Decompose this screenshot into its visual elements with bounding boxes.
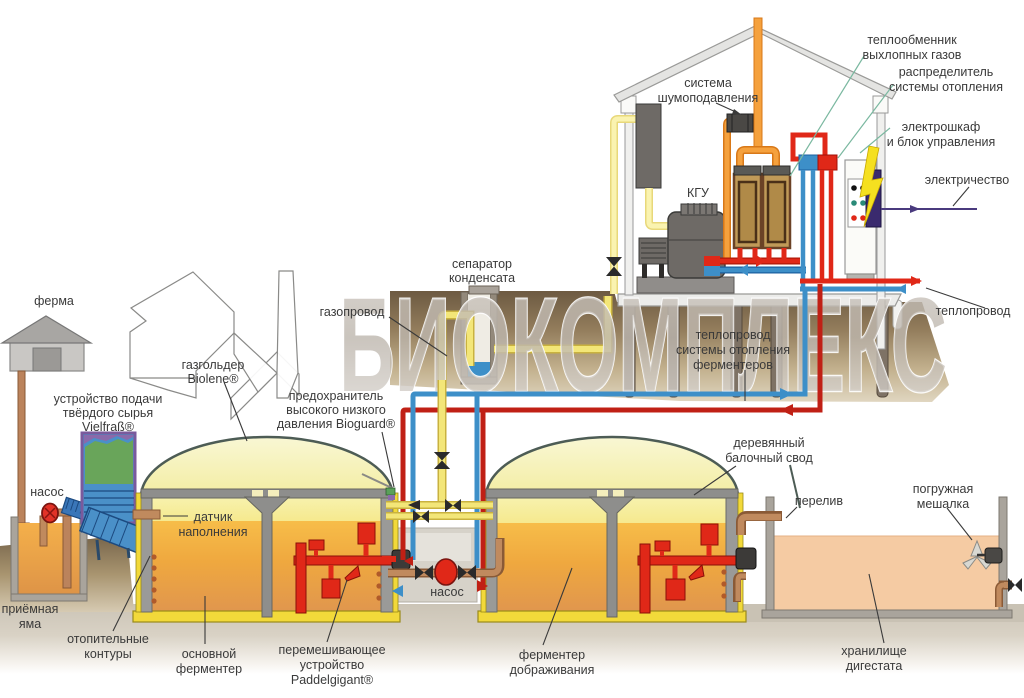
svg-text:и блок управления: и блок управления bbox=[887, 135, 996, 149]
svg-text:ферма: ферма bbox=[34, 294, 74, 308]
svg-text:дображивания: дображивания bbox=[510, 663, 595, 677]
svg-text:распределитель: распределитель bbox=[899, 65, 994, 79]
svg-text:газопровод: газопровод bbox=[320, 305, 385, 319]
svg-text:Paddelgigant®: Paddelgigant® bbox=[291, 673, 374, 687]
svg-text:деревянный: деревянный bbox=[733, 436, 804, 450]
svg-text:приёмная: приёмная bbox=[2, 602, 59, 616]
svg-text:основной: основной bbox=[182, 647, 237, 661]
svg-text:давления Bioguard®: давления Bioguard® bbox=[277, 417, 396, 431]
svg-text:Biolene®: Biolene® bbox=[188, 372, 240, 386]
svg-text:твёрдого сырья: твёрдого сырья bbox=[63, 406, 153, 420]
svg-text:отопительные: отопительные bbox=[67, 632, 149, 646]
svg-text:высокого низкого: высокого низкого bbox=[286, 403, 386, 417]
svg-text:предохранитель: предохранитель bbox=[289, 389, 383, 403]
svg-text:дигестата: дигестата bbox=[846, 659, 903, 673]
svg-text:ферментер: ферментер bbox=[519, 648, 585, 662]
svg-text:конденсата: конденсата bbox=[449, 271, 515, 285]
svg-text:наполнения: наполнения bbox=[178, 525, 247, 539]
svg-text:погружная: погружная bbox=[913, 482, 973, 496]
svg-text:устройство: устройство bbox=[300, 658, 364, 672]
svg-text:системы отопления: системы отопления bbox=[889, 80, 1003, 94]
svg-text:электрошкаф: электрошкаф bbox=[902, 120, 981, 134]
svg-text:сепаратор: сепаратор bbox=[452, 257, 512, 271]
svg-text:ферментер: ферментер bbox=[176, 662, 242, 676]
svg-text:система: система bbox=[684, 76, 732, 90]
svg-text:теплообменник: теплообменник bbox=[867, 33, 957, 47]
svg-text:перемешивающее: перемешивающее bbox=[278, 643, 385, 657]
svg-text:теплопровод: теплопровод bbox=[696, 328, 772, 342]
svg-text:теплопровод: теплопровод bbox=[936, 304, 1012, 318]
svg-text:перелив: перелив bbox=[795, 494, 843, 508]
svg-text:мешалка: мешалка bbox=[917, 497, 970, 511]
svg-text:насос: насос bbox=[30, 485, 63, 499]
svg-text:КГУ: КГУ bbox=[687, 186, 709, 200]
svg-text:контуры: контуры bbox=[84, 647, 131, 661]
svg-text:шумоподавления: шумоподавления bbox=[658, 91, 759, 105]
svg-text:газгольдер: газгольдер bbox=[182, 358, 245, 372]
svg-text:устройство подачи: устройство подачи bbox=[54, 392, 163, 406]
svg-text:хранилище: хранилище bbox=[841, 644, 906, 658]
svg-text:ферментеров: ферментеров bbox=[693, 358, 773, 372]
svg-text:яма: яма bbox=[19, 617, 41, 631]
svg-text:электричество: электричество bbox=[925, 173, 1010, 187]
svg-text:выхлопных газов: выхлопных газов bbox=[863, 48, 962, 62]
svg-text:БИОКОМПЛЕКС: БИОКОМПЛЕКС bbox=[339, 271, 947, 420]
svg-text:датчик: датчик bbox=[194, 510, 233, 524]
svg-text:системы отопления: системы отопления bbox=[676, 343, 790, 357]
svg-text:Vielfraß®: Vielfraß® bbox=[82, 420, 135, 434]
svg-text:насос: насос bbox=[430, 585, 463, 599]
svg-text:балочный свод: балочный свод bbox=[725, 451, 813, 465]
